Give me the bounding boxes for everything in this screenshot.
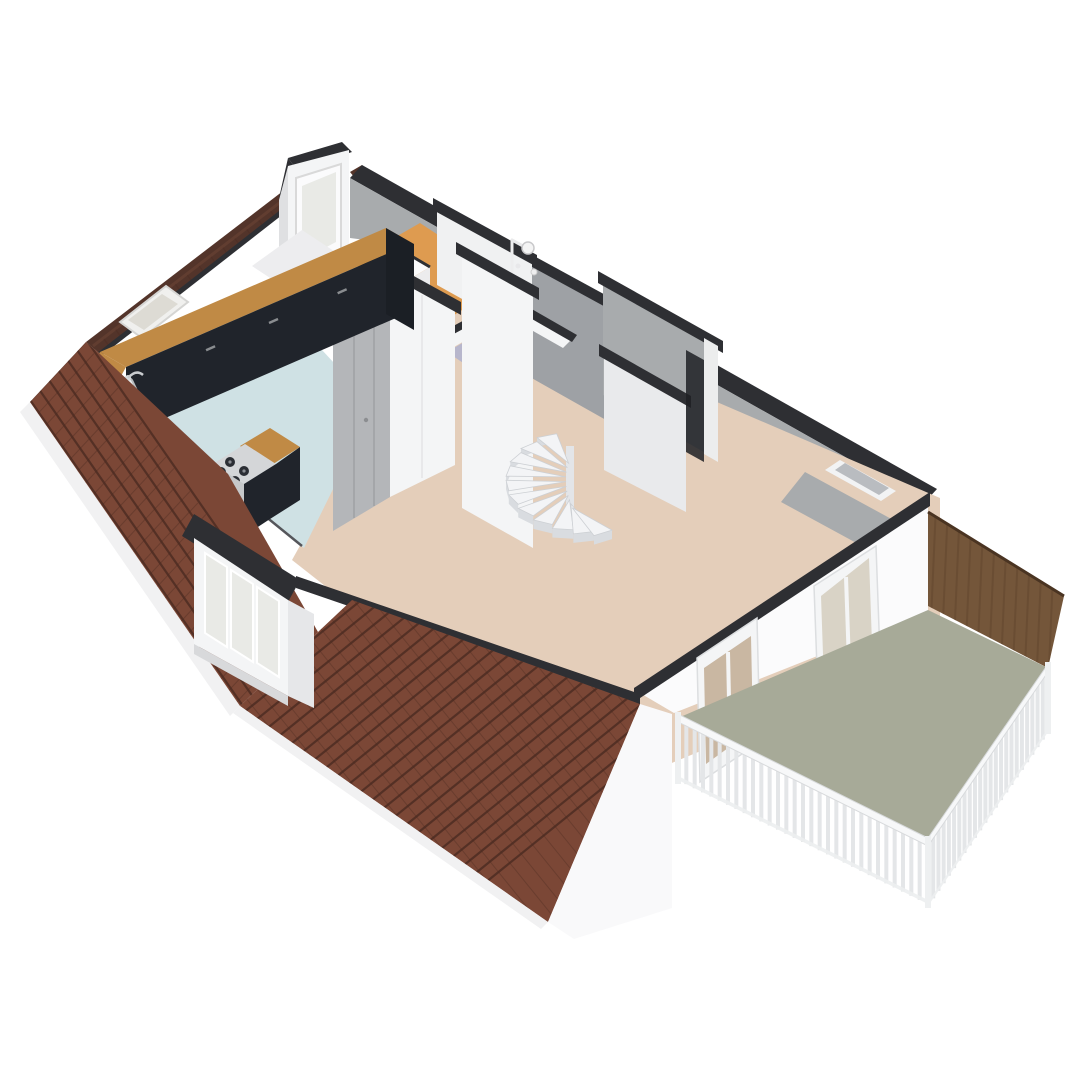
doorway-gap xyxy=(686,350,704,462)
tall-cabinet xyxy=(386,228,414,330)
stairwell-wall xyxy=(462,250,533,548)
floorplan-3d-render xyxy=(0,0,1080,1080)
door-handle xyxy=(364,418,368,422)
floorplan-3d-view xyxy=(0,0,1080,1080)
